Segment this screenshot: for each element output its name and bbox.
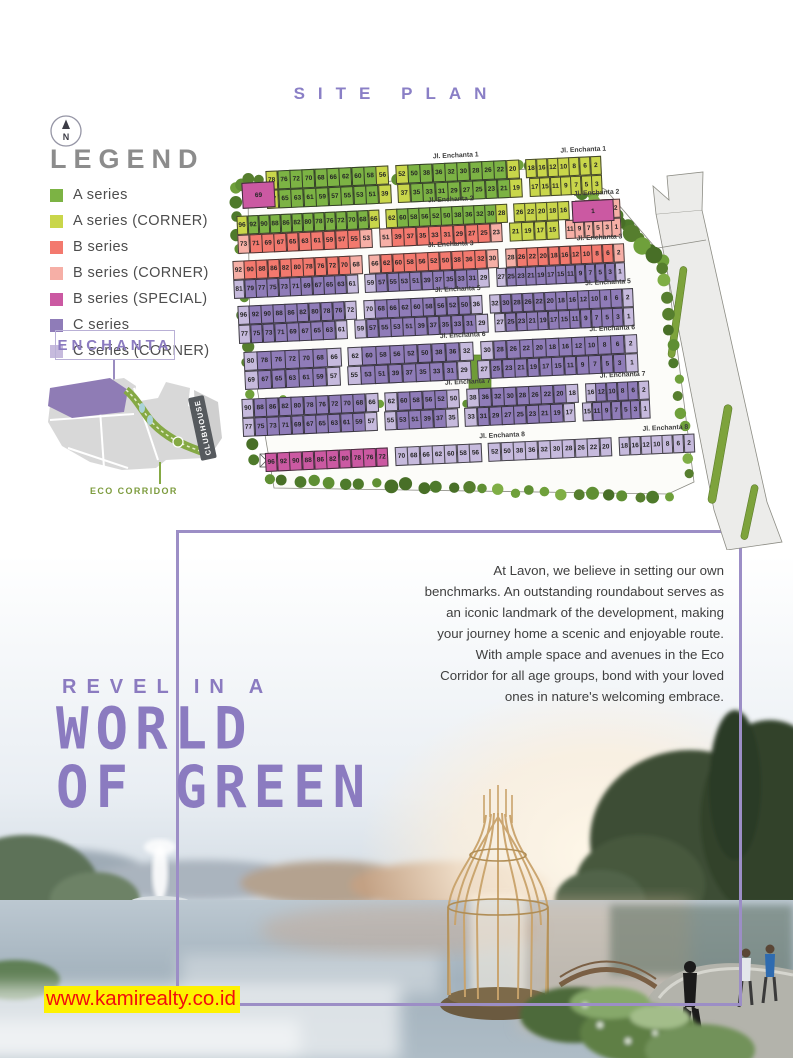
lot-cell: 28 bbox=[496, 204, 508, 224]
watermark-link[interactable]: www.kamirealty.co.id bbox=[44, 986, 240, 1013]
street-name: Jl. Enchanta 5 bbox=[435, 285, 481, 294]
headline: WORLD OF GREEN bbox=[56, 700, 372, 817]
street-name: Jl. Enchanta 2 bbox=[428, 195, 474, 204]
legend-swatch bbox=[50, 293, 63, 306]
lot-cell: 2 bbox=[621, 288, 633, 308]
legend-item: A series bbox=[50, 182, 210, 208]
lot-cell: 36 bbox=[470, 295, 483, 315]
lot-cell: 68 bbox=[350, 255, 363, 275]
legend-swatch bbox=[50, 215, 63, 228]
lot-cell: 57 bbox=[364, 412, 378, 432]
legend-label: B series (CORNER) bbox=[73, 265, 209, 281]
lot-cell: 2 bbox=[590, 156, 602, 175]
minimap-enchanta-zone bbox=[48, 378, 128, 418]
legend-item: B series (SPECIAL) bbox=[50, 286, 210, 312]
site-plan-map: Jl. Enchanta 1Jl. Enchanta 1787672706866… bbox=[222, 148, 793, 550]
lot-cell: 66 bbox=[327, 348, 342, 368]
project-name-box: ENCHANTA bbox=[55, 330, 175, 360]
lot-cell: 56 bbox=[389, 345, 404, 365]
lot-cell: 78 bbox=[257, 351, 272, 371]
lot-cell: 80 bbox=[243, 351, 258, 371]
street-name: Jl. Enchanta 1 bbox=[560, 146, 606, 155]
lot-block: 555351393735 bbox=[384, 408, 458, 430]
lot-cell: 66 bbox=[365, 393, 379, 413]
lot-cell: 2 bbox=[683, 433, 695, 452]
lot-block: 70686662605856 bbox=[395, 443, 482, 466]
lot-cell: 36 bbox=[445, 342, 460, 362]
minimap-roundabout bbox=[173, 437, 183, 447]
intro-paragraph: At Lavon, we believe in setting our own … bbox=[424, 561, 724, 707]
lot-cell: 72 bbox=[285, 349, 300, 369]
minimap-pond-2 bbox=[147, 415, 153, 425]
headline-line-2: OF GREEN bbox=[56, 758, 372, 816]
street-name: Jl. Enchanta 7 bbox=[600, 371, 646, 380]
headline-line-1: WORLD bbox=[56, 700, 372, 758]
lot-cell: 62 bbox=[347, 347, 362, 367]
legend-label: A series bbox=[73, 187, 128, 203]
location-minimap: CLUBHOUSE bbox=[38, 360, 228, 490]
eco-corridor-leader-line bbox=[159, 462, 161, 484]
lot-block: 2622201816 bbox=[514, 201, 570, 222]
special-lot: 69 bbox=[241, 181, 275, 209]
lot-cell: 72 bbox=[344, 301, 357, 321]
lot-cell: 16 bbox=[557, 201, 569, 221]
legend-label: B series (SPECIAL) bbox=[73, 291, 208, 307]
street-name: Jl. Enchanta 2 bbox=[573, 189, 619, 198]
street-name: Jl. Enchanta 8 bbox=[479, 431, 525, 440]
legend-swatch bbox=[50, 241, 63, 254]
legend-label: B series bbox=[73, 239, 129, 255]
lot-cell: 72 bbox=[375, 447, 389, 467]
lot-cell: 56 bbox=[376, 165, 390, 185]
street-name: Jl. Enchanta 3 bbox=[577, 233, 623, 242]
lot-cell: 2 bbox=[624, 334, 638, 354]
lot-cell: 2 bbox=[613, 243, 625, 262]
lot-block: 151197531 bbox=[582, 399, 650, 421]
lot-cell: 76 bbox=[271, 350, 286, 370]
lot-cell: 52 bbox=[403, 344, 418, 364]
street-name: Jl. Enchanta 6 bbox=[440, 331, 486, 340]
street-name: Jl. Enchanta 7 bbox=[445, 378, 491, 387]
svg-text:N: N bbox=[63, 132, 70, 142]
legend-heading: LEGEND bbox=[50, 144, 205, 175]
lot-cell: 50 bbox=[447, 389, 461, 409]
lot-cell: 17 bbox=[563, 403, 577, 423]
lot-cell: 18 bbox=[565, 384, 579, 404]
lot-cell: 70 bbox=[299, 349, 314, 369]
lot-block: 333129272523211917 bbox=[465, 403, 576, 427]
lot-cell: 20 bbox=[506, 160, 520, 180]
street-name: Jl. Enchanta 8 bbox=[642, 424, 688, 433]
lot-cell: 2 bbox=[638, 381, 650, 400]
lot-cell: 58 bbox=[375, 345, 390, 365]
lot-cell: 60 bbox=[361, 346, 376, 366]
legend-item: B series (CORNER) bbox=[50, 260, 210, 286]
lot-cell: 56 bbox=[469, 443, 483, 463]
legend-swatch bbox=[50, 267, 63, 280]
lot-cell: 30 bbox=[486, 249, 499, 269]
brochure-page: SITE PLAN N LEGEND A seriesA series (COR… bbox=[0, 0, 793, 1058]
special-lot: 1 bbox=[571, 199, 614, 223]
minimap-pond-1 bbox=[139, 403, 145, 413]
lot-grid: Jl. Enchanta 1Jl. Enchanta 1787672706866… bbox=[222, 148, 793, 550]
street-name: Jl. Enchanta 6 bbox=[589, 324, 635, 333]
page-title: SITE PLAN bbox=[0, 84, 793, 104]
legend-item: B series bbox=[50, 234, 210, 260]
project-name: ENCHANTA bbox=[57, 337, 172, 354]
street-name: Jl. Enchanta 1 bbox=[433, 151, 479, 160]
lot-cell: 20 bbox=[599, 437, 613, 457]
street-name: Jl. Enchanta 5 bbox=[585, 278, 631, 287]
lot-cell: 38 bbox=[431, 343, 446, 363]
eco-corridor-label: ECO CORRIDOR bbox=[90, 486, 178, 496]
lot-cell: 1 bbox=[640, 399, 651, 418]
legend-item: A series (CORNER) bbox=[50, 208, 210, 234]
lot-cell: 68 bbox=[313, 348, 328, 368]
lot-cell: 50 bbox=[417, 343, 432, 363]
lot-cell: 32 bbox=[459, 342, 474, 362]
legend-label: A series (CORNER) bbox=[73, 213, 208, 229]
lot-cell: 66 bbox=[368, 210, 380, 230]
lot-cell: 35 bbox=[445, 408, 459, 428]
legend-swatch bbox=[50, 189, 63, 202]
lot-block: 18161210862 bbox=[619, 433, 695, 455]
street-name: Jl. Enchanta 3 bbox=[428, 240, 474, 249]
